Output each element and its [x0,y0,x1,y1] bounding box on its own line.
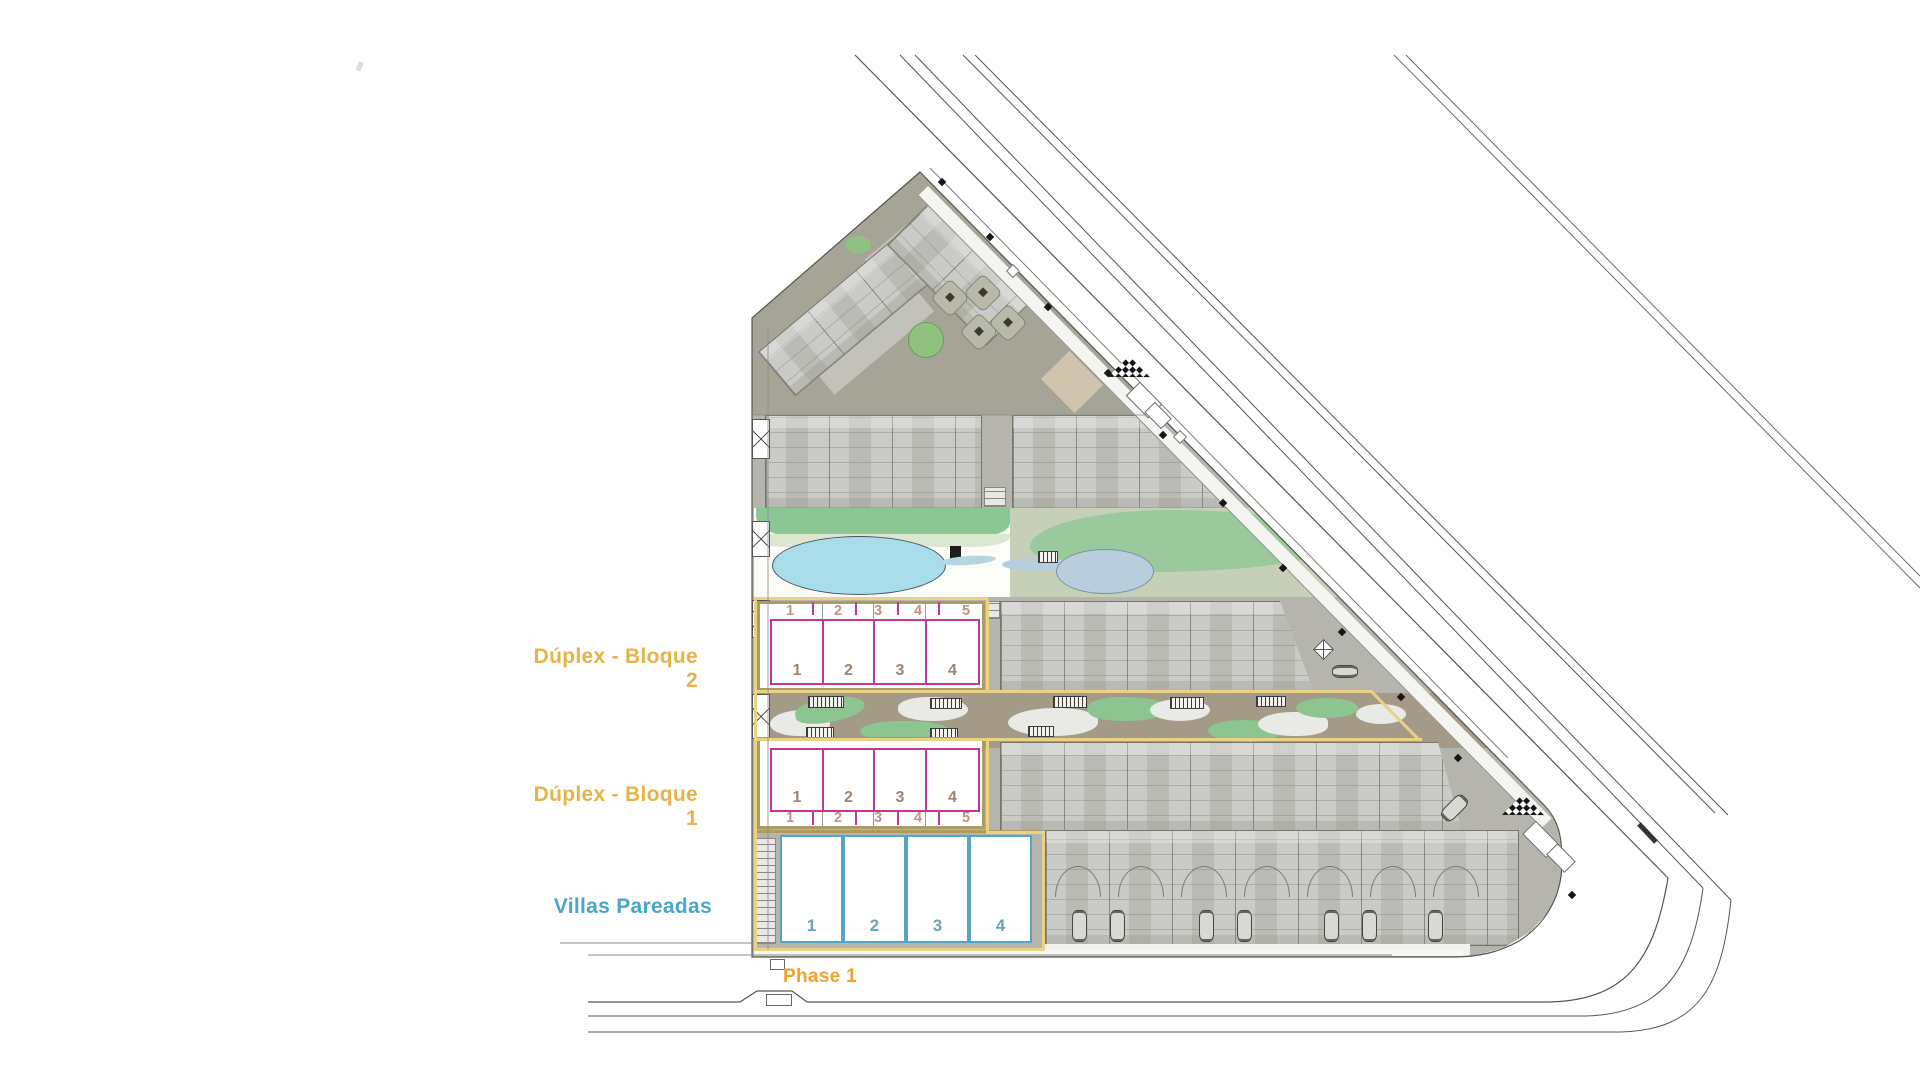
lawn-circle [908,322,944,358]
unit-number: 2 [845,916,904,936]
parked-car [1072,910,1087,942]
plot-divider [822,812,823,828]
print-smudge [356,61,364,71]
bloque2-plot-number: 1 [780,603,800,619]
bloque1-plot-number: 1 [780,810,800,826]
phase1-boundary [754,738,1422,741]
sidewalk-path [754,950,1462,956]
bloque1-unit-4[interactable]: 4 [925,748,980,812]
parked-car [1332,665,1358,678]
bloque2-unit-1[interactable]: 1 [770,619,824,685]
bloque1-plot-number: 3 [868,810,888,826]
bloque2-unit-3[interactable]: 3 [873,619,927,685]
apartment-row [1000,601,1314,692]
plot-tick [897,812,899,825]
bloque1-plot-number: 2 [828,810,848,826]
pond [1056,549,1154,594]
pool-lawn-band [756,508,1010,536]
phase1-label: Phase 1 [765,966,875,988]
phase1-boundary [754,597,988,600]
garden-deck [1038,551,1058,563]
phase1-boundary [754,690,1372,693]
planter-shrub [978,287,988,297]
planter-shrub [974,326,984,336]
pergola [1028,726,1054,737]
phase1-boundary [986,740,989,833]
villa-unit-1[interactable]: 1 [780,835,843,943]
road-marking-dash [1639,824,1656,842]
parked-car [1324,910,1339,942]
unit-number: 1 [772,789,822,807]
bloque2-label: Dúplex - Bloque 2 [528,645,698,693]
bloque2-plot-number: 5 [956,603,976,619]
parked-car [1428,910,1443,942]
apartment-row [1000,742,1462,832]
plot-tick [938,812,940,825]
pergola [930,698,962,709]
unit-number: 2 [824,789,873,807]
villas-label: Villas Pareadas [540,895,712,919]
bloque2-plot-number: 2 [828,603,848,619]
parked-car [1362,910,1377,942]
bloque2-unit-4[interactable]: 4 [925,619,980,685]
plot-tick [938,602,940,615]
plot-divider [822,601,823,619]
bloque2-plot-number: 3 [868,603,888,619]
villa-unit-2[interactable]: 2 [843,835,906,943]
unit-number: 1 [772,662,822,680]
phase1-boundary [754,948,1044,951]
swimming-pool [772,536,946,595]
utility-box [752,521,770,557]
villa-unit-3[interactable]: 3 [906,835,969,943]
planter-shrub [945,292,955,302]
unit-number: 4 [927,662,978,680]
bloque2-unit-2[interactable]: 2 [822,619,875,685]
plot-tick [812,602,814,615]
phase1-boundary [1042,831,1045,950]
site-plan: 1 2 3 4 5 1 2 3 4 1 2 3 4 1 2 3 4 5 1 2 … [0,0,1920,1080]
lawn-patch [845,236,871,253]
phase1-boundary [986,599,989,690]
unit-number: 2 [824,662,873,680]
unit-number: 3 [875,662,925,680]
bloque1-unit-2[interactable]: 2 [822,748,875,812]
service-strip [754,838,776,944]
bloque1-unit-1[interactable]: 1 [770,748,824,812]
unit-number: 1 [782,916,841,936]
bloque1-plot-number: 5 [956,810,976,826]
bloque1-plot-number: 4 [908,810,928,826]
plot-tick [855,602,857,615]
unit-number: 3 [908,916,967,936]
villa-unit-4[interactable]: 4 [969,835,1032,943]
shrub-blob [1296,698,1358,718]
phase1-boundary [986,831,1044,834]
unit-number: 3 [875,789,925,807]
plot-tick [855,812,857,825]
parcel-area: 1 2 3 4 5 1 2 3 4 1 2 3 4 1 2 3 4 5 1 2 … [0,0,1920,1080]
planter-shrub [1003,317,1013,327]
street-light-dot [986,233,994,241]
unit-number: 4 [927,789,978,807]
parked-car [1237,910,1252,942]
plot-tick [812,812,814,825]
unit-number: 4 [971,916,1030,936]
bloque2-plot-number: 4 [908,603,928,619]
bloque1-unit-3[interactable]: 3 [873,748,927,812]
apartment-row [765,415,982,509]
parked-car [1199,910,1214,942]
parked-car [1110,910,1125,942]
pergola [1170,697,1204,709]
opposite-road-line [1394,55,1920,588]
opposite-road-line [1406,55,1920,576]
pergola [1053,696,1087,708]
plot-tick [897,602,899,615]
pergola [808,696,844,708]
bus-stop-box [766,994,792,1006]
street-light-dot [1568,891,1576,899]
bloque1-label: Dúplex - Bloque 1 [528,783,698,831]
utility-box [752,419,770,459]
street-light-dot [938,178,946,186]
phase1-boundary [754,597,757,950]
stairs [984,487,1006,507]
pergola [1256,696,1286,707]
